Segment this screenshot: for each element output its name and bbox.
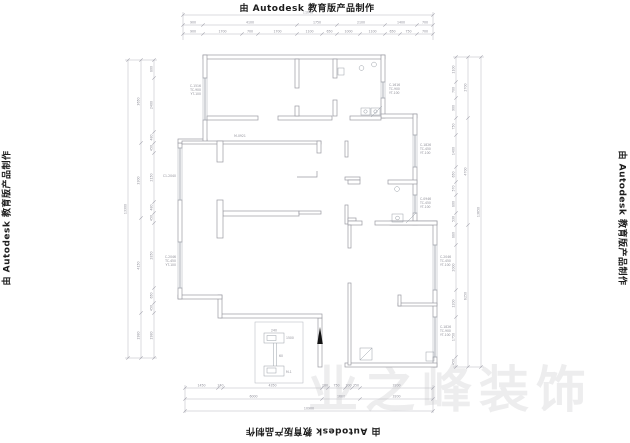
dim-label: 13650 [477,207,481,217]
dim-label: 2700 [464,83,468,91]
window-tag: YT-100 [420,205,431,209]
dim-label: 750 [333,384,339,388]
dim-label: 450 [150,305,154,311]
floor-plan-canvas: 240 1500 60 M-1 C-1516 TC-900 YT-100 C1-… [0,0,630,443]
sink-icon [361,108,370,115]
dim-label: 6250 [464,292,468,300]
dim-label: 900 [452,105,456,111]
dim-label: 2150 [150,173,154,181]
dim-label: 4150 [137,261,141,269]
dim-label: 1100 [305,30,313,34]
dimension-chain-top: 11040 900 4100 1750 2100 1400 700 900 17… [181,11,434,41]
dim-label: 1200 [452,299,456,307]
dim-label: 350 [353,384,359,388]
dim-label: 3200 [392,395,400,399]
dim-label: 4100 [246,21,254,25]
dim-label: 700 [422,21,428,25]
dim-label: 3200 [392,384,400,388]
dim-label: 280 [322,384,328,388]
dim-label: 700 [247,30,253,34]
marker-label: 60 [279,354,283,358]
balcony-marker [255,322,303,383]
dim-label: 6000 [249,395,257,399]
dim-label: 2850 [150,251,154,259]
dim-label: 800 [452,201,456,207]
dim-label: 1700 [273,30,281,34]
dim-label: 900 [190,21,196,25]
dimension-chain-right: 1100 700 900 750 1400 650 570 800 530 88… [452,55,485,368]
ceiling-lamp-icon [395,187,400,192]
dim-label: 11040 [303,11,313,15]
fixtures [338,62,434,361]
door-tag: M-0921 [234,134,246,138]
dim-label: 650 [452,171,456,177]
dim-label: 650 [389,30,395,34]
ceiling-lamp-icon [372,62,377,67]
dim-label: 1750 [452,333,456,341]
dim-label: 750 [452,123,456,129]
dim-label: 4700 [464,167,468,175]
marker-label: 240 [271,329,277,333]
dim-label: 13300 [124,204,128,214]
ceiling-lamp-icon [359,66,364,71]
window-tag: C1-2040 [163,174,176,178]
dim-label: 1000 [344,30,352,34]
dim-label: 450 [452,359,456,365]
dim-label: 1700 [218,30,226,34]
interior-walls [182,59,437,365]
dim-label: 800 [150,66,154,72]
dim-label: 1750 [313,21,321,25]
dim-label: 2100 [357,21,365,25]
window-tag: YT-100 [440,263,451,267]
dim-label: 900 [190,30,196,34]
dim-label: 300 [345,384,351,388]
dim-label: 650 [150,292,154,298]
window-tag: YT-100 [190,92,201,96]
dim-label: 1100 [452,65,456,73]
marker-label: 1500 [286,336,294,340]
dim-label: 700 [452,87,456,93]
dim-label: 2000 [452,263,456,271]
window-tag: YT-100 [389,91,400,95]
window-tag: YT-100 [440,333,451,337]
drawing-sheet: 由 Autodesk 教育版产品制作 由 Autodesk 教育版产品制作 由 … [0,0,630,443]
window-tag: YT-100 [420,151,431,155]
dim-label: 1680 [337,395,345,399]
dim-label: 480 [150,134,154,140]
dim-label: 1400 [397,21,405,25]
dim-label: 10900 [304,407,314,411]
dim-label: 450 [150,215,154,221]
dim-label: 4350 [268,384,276,388]
dim-label: 570 [452,185,456,191]
dim-label: 240 [217,384,223,388]
meter-box-icon [338,68,344,75]
dim-label: 3300 [137,176,141,184]
dim-label: 530 [452,216,456,222]
dim-label: 1400 [452,147,456,155]
dim-label: 1450 [197,384,205,388]
dim-label: 480 [150,204,154,210]
dimension-chain-left: 13300 3650 3300 4150 1980 800 2400 480 4… [124,58,158,359]
dim-label: 3650 [137,97,141,105]
dim-label: 1980 [137,331,141,339]
dim-label: 880 [452,232,456,238]
dim-label: 750 [405,30,411,34]
dimension-chain-bottom: 1450 240 4350 280 750 300 350 3200 6000 … [183,384,434,414]
dim-label: 450 [150,145,154,151]
window-tag: YT-100 [165,263,176,267]
dim-label: 1980 [150,331,154,339]
dim-label: 1100 [368,30,376,34]
marker-label: M-1 [286,370,292,374]
dim-label: 650 [326,30,332,34]
door-swing-icon [371,106,382,117]
dim-label: 2400 [150,101,154,109]
dim-label: 700 [422,30,428,34]
